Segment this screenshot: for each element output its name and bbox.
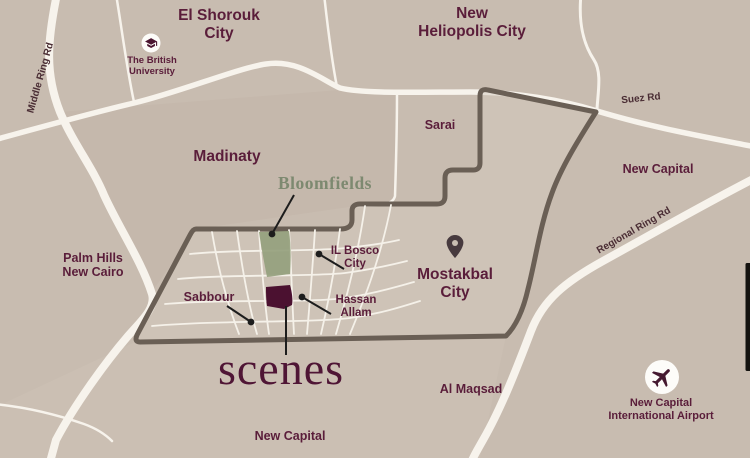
label-line: New <box>418 5 526 23</box>
dot-il-bosco <box>316 251 323 258</box>
label-line: New Cairo <box>62 265 123 279</box>
black-edge-bar <box>746 263 750 371</box>
label-line: Palm Hills <box>62 251 123 265</box>
label-il-bosco-city: IL Bosco City <box>331 245 379 271</box>
label-new-heliopolis-city: New Heliopolis City <box>418 5 526 41</box>
label-line: International Airport <box>608 410 713 423</box>
university-marker <box>142 34 161 53</box>
label-hassan-allam: Hassan Allam <box>336 294 377 320</box>
road-minor-shorouk <box>324 0 337 87</box>
label-madinaty: Madinaty <box>193 148 260 166</box>
label-sabbour: Sabbour <box>184 290 235 304</box>
label-sarai: Sarai <box>425 118 456 132</box>
label-line: Hassan <box>336 294 377 307</box>
label-mostakbal-city: Mostakbal City <box>417 266 493 302</box>
label-new-capital-northeast: New Capital <box>623 162 694 176</box>
label-el-shorouk-city: El Shorouk City <box>178 7 260 43</box>
label-line: The British <box>127 55 177 66</box>
location-pin-hole <box>452 240 458 246</box>
label-line: Heliopolis City <box>418 23 526 41</box>
label-line: University <box>127 66 177 77</box>
label-new-capital-airport: New Capital International Airport <box>608 397 713 423</box>
location-map: El Shorouk City New Heliopolis City The … <box>0 0 750 458</box>
label-line: El Shorouk <box>178 7 260 25</box>
label-bloomfields: Bloomfields <box>278 175 372 193</box>
dot-hassan-allam <box>299 294 306 301</box>
label-british-university: The British University <box>127 55 177 77</box>
block-scenes-site <box>266 285 292 309</box>
label-line: Mostakbal <box>417 266 493 284</box>
label-line: City <box>331 258 379 271</box>
label-line: City <box>178 25 260 43</box>
dot-bloomfields <box>269 231 276 238</box>
label-new-capital-south: New Capital <box>255 429 326 443</box>
label-line: City <box>417 284 493 302</box>
scenes-logo: scenes <box>218 346 344 392</box>
road-heliopolis <box>580 0 599 109</box>
airport-marker <box>645 360 679 394</box>
label-line: IL Bosco <box>331 245 379 258</box>
label-line: New Capital <box>608 397 713 410</box>
road-minor-west <box>116 0 134 102</box>
label-al-maqsad: Al Maqsad <box>440 382 503 396</box>
label-line: Allam <box>336 307 377 320</box>
label-palm-hills-new-cairo: Palm Hills New Cairo <box>62 251 123 280</box>
dot-sabbour <box>248 319 255 326</box>
